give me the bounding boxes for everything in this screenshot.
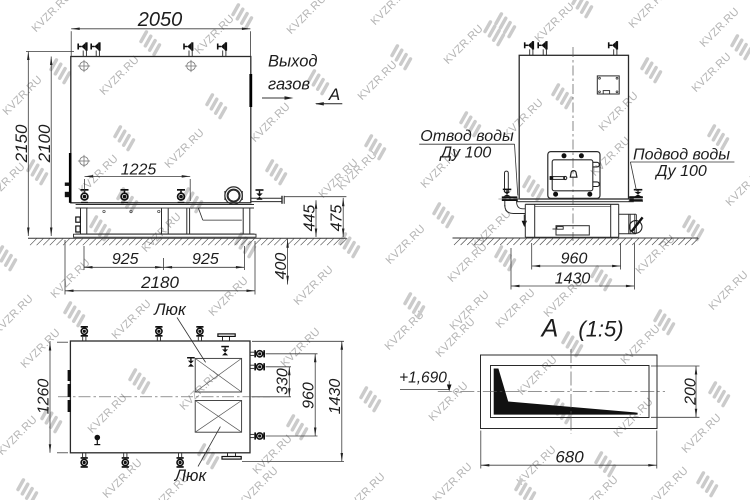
svg-text:А: А (540, 315, 559, 343)
svg-text:475: 475 (329, 205, 346, 232)
svg-text:+1,690: +1,690 (399, 370, 447, 387)
svg-text:KVZR.RU: KVZR.RU (619, 323, 663, 367)
svg-text:Отвод воды: Отвод воды (420, 128, 514, 145)
svg-text:KVZR.RU: KVZR.RU (627, 0, 671, 31)
svg-text:KVZR.RU: KVZR.RU (724, 165, 750, 209)
svg-text:960: 960 (301, 382, 318, 409)
svg-text:KVZR.RU: KVZR.RU (470, 208, 514, 252)
svg-text:KVZR.RU: KVZR.RU (193, 13, 237, 57)
svg-text:KVZR.RU: KVZR.RU (249, 101, 293, 145)
svg-text:1225: 1225 (121, 162, 157, 179)
svg-text:KVZR.RU: KVZR.RU (163, 127, 207, 171)
svg-text:2050: 2050 (137, 9, 183, 31)
svg-text:KVZR.RU: KVZR.RU (597, 90, 641, 134)
svg-text:KVZR.RU: KVZR.RU (0, 293, 36, 337)
svg-text:KVZR.RU: KVZR.RU (19, 327, 63, 371)
svg-text:KVZR.RU: KVZR.RU (110, 298, 154, 342)
svg-text:KVZR.RU: KVZR.RU (0, 414, 40, 458)
svg-text:200: 200 (683, 378, 700, 406)
svg-text:Ду 100: Ду 100 (439, 145, 492, 162)
svg-text:KVZR.RU: KVZR.RU (30, 0, 74, 35)
svg-text:KVZR.RU: KVZR.RU (344, 471, 388, 500)
svg-text:445: 445 (302, 205, 319, 232)
svg-text:925: 925 (192, 251, 219, 268)
svg-text:Выход: Выход (268, 53, 318, 71)
svg-text:А: А (328, 85, 340, 104)
svg-text:Подвод воды: Подвод воды (633, 147, 730, 164)
svg-text:2150: 2150 (12, 124, 31, 163)
svg-text:(1:5): (1:5) (578, 317, 623, 342)
svg-text:KVZR.RU: KVZR.RU (589, 135, 633, 179)
svg-text:газов: газов (268, 76, 310, 94)
svg-text:1430: 1430 (555, 271, 591, 288)
svg-text:KVZR.RU: KVZR.RU (49, 257, 93, 301)
svg-text:KVZR.RU: KVZR.RU (285, 0, 329, 37)
svg-text:KVZR.RU: KVZR.RU (577, 474, 621, 500)
svg-text:KVZR.RU: KVZR.RU (369, 0, 413, 28)
svg-text:KVZR.RU: KVZR.RU (442, 23, 486, 67)
svg-text:1430: 1430 (327, 379, 344, 415)
svg-text:KVZR.RU: KVZR.RU (292, 264, 336, 308)
svg-text:KVZR.RU: KVZR.RU (384, 223, 428, 267)
svg-text:KVZR.RU: KVZR.RU (494, 287, 538, 331)
svg-text:KVZR.RU: KVZR.RU (680, 412, 724, 456)
svg-text:925: 925 (112, 251, 139, 268)
svg-text:KVZR.RU: KVZR.RU (207, 275, 251, 319)
svg-text:KVZR.RU: KVZR.RU (690, 51, 734, 95)
svg-text:960: 960 (561, 251, 588, 268)
svg-text:KVZR.RU: KVZR.RU (178, 369, 222, 413)
svg-text:680: 680 (555, 448, 584, 467)
svg-text:KVZR.RU: KVZR.RU (431, 461, 475, 500)
svg-text:Ду 100: Ду 100 (654, 163, 707, 180)
svg-text:KVZR.RU: KVZR.RU (647, 465, 691, 500)
svg-text:KVZR.RU: KVZR.RU (98, 54, 142, 98)
svg-text:KVZR.RU: KVZR.RU (279, 326, 323, 370)
svg-text:2180: 2180 (140, 273, 179, 292)
svg-text:Люк: Люк (153, 301, 187, 319)
svg-text:KVZR.RU: KVZR.RU (0, 161, 28, 205)
svg-text:330: 330 (275, 368, 292, 395)
svg-text:KVZR.RU: KVZR.RU (533, 1, 577, 45)
svg-text:KVZR.RU: KVZR.RU (446, 241, 490, 285)
svg-text:KVZR.RU: KVZR.RU (86, 392, 130, 436)
svg-text:1260: 1260 (36, 379, 53, 415)
svg-text:400: 400 (273, 253, 290, 280)
svg-text:KVZR.RU: KVZR.RU (707, 269, 750, 313)
svg-text:KVZR.RU: KVZR.RU (356, 59, 400, 103)
svg-text:Люк: Люк (174, 467, 208, 485)
svg-text:KVZR.RU: KVZR.RU (1, 74, 45, 118)
svg-text:2100: 2100 (35, 124, 54, 163)
